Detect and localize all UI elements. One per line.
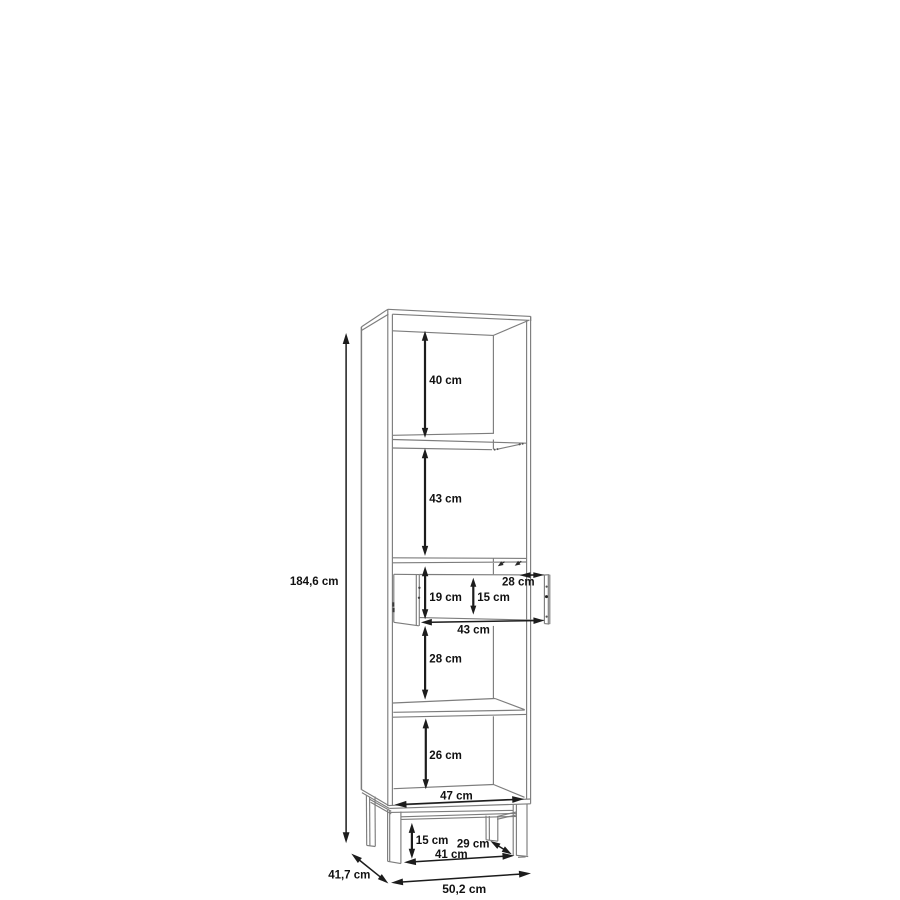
svg-text:19 cm: 19 cm [429,592,462,604]
svg-text:43 cm: 43 cm [429,493,462,505]
svg-text:28 cm: 28 cm [429,653,462,665]
svg-text:26 cm: 26 cm [429,750,462,762]
svg-text:41,7 cm: 41,7 cm [328,870,370,882]
svg-text:41 cm: 41 cm [435,849,468,861]
svg-text:50,2 cm: 50,2 cm [442,882,486,896]
svg-text:15 cm: 15 cm [416,835,449,847]
svg-text:43 cm: 43 cm [457,624,490,636]
svg-text:40 cm: 40 cm [429,375,462,387]
svg-text:47 cm: 47 cm [440,790,473,802]
svg-text:28 cm: 28 cm [502,577,535,589]
svg-text:184,6 cm: 184,6 cm [290,576,339,588]
svg-text:15 cm: 15 cm [477,592,510,604]
